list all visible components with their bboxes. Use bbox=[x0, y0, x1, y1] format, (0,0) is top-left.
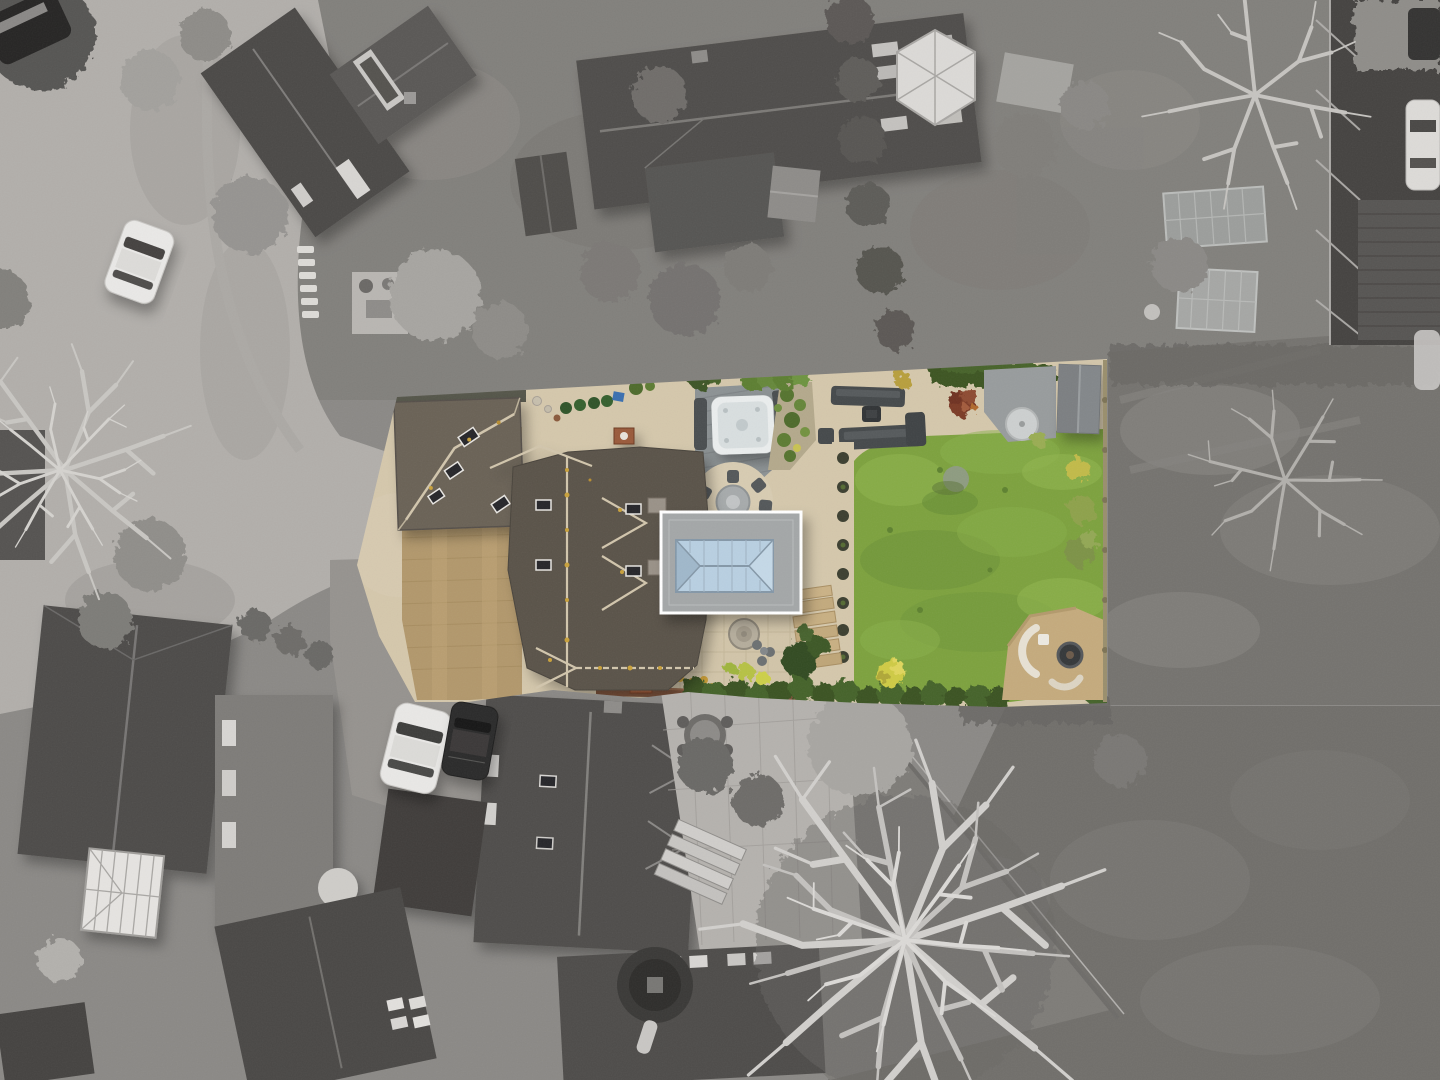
photo-grain bbox=[0, 0, 1440, 1080]
aerial-photo-canvas bbox=[0, 0, 1440, 1080]
aerial-photo bbox=[0, 0, 1440, 1080]
